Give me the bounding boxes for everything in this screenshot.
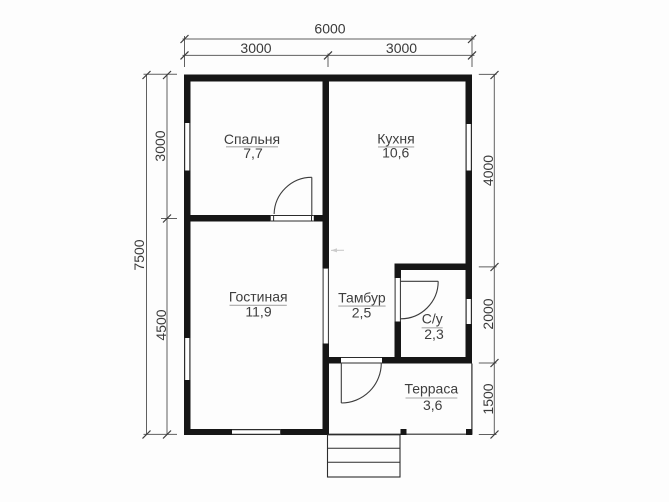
svg-text:2,5: 2,5 [352, 304, 372, 320]
svg-text:3,6: 3,6 [423, 397, 443, 413]
svg-text:Гостиная: Гостиная [229, 288, 288, 304]
svg-text:11,9: 11,9 [245, 304, 271, 320]
svg-text:3000: 3000 [152, 130, 168, 161]
svg-text:7500: 7500 [131, 239, 147, 270]
svg-text:6000: 6000 [314, 21, 345, 37]
svg-text:3000: 3000 [240, 40, 271, 56]
svg-text:С/у: С/у [422, 310, 443, 326]
svg-text:2,3: 2,3 [424, 326, 444, 342]
svg-text:4000: 4000 [480, 155, 496, 186]
svg-text:7,7: 7,7 [243, 145, 263, 161]
svg-text:2000: 2000 [480, 298, 496, 329]
svg-text:3000: 3000 [386, 40, 417, 56]
svg-text:4500: 4500 [153, 309, 169, 340]
svg-text:Тамбур: Тамбур [338, 289, 386, 305]
svg-text:Терраса: Терраса [404, 381, 458, 397]
svg-text:1500: 1500 [480, 383, 496, 414]
svg-text:10,6: 10,6 [382, 145, 409, 161]
